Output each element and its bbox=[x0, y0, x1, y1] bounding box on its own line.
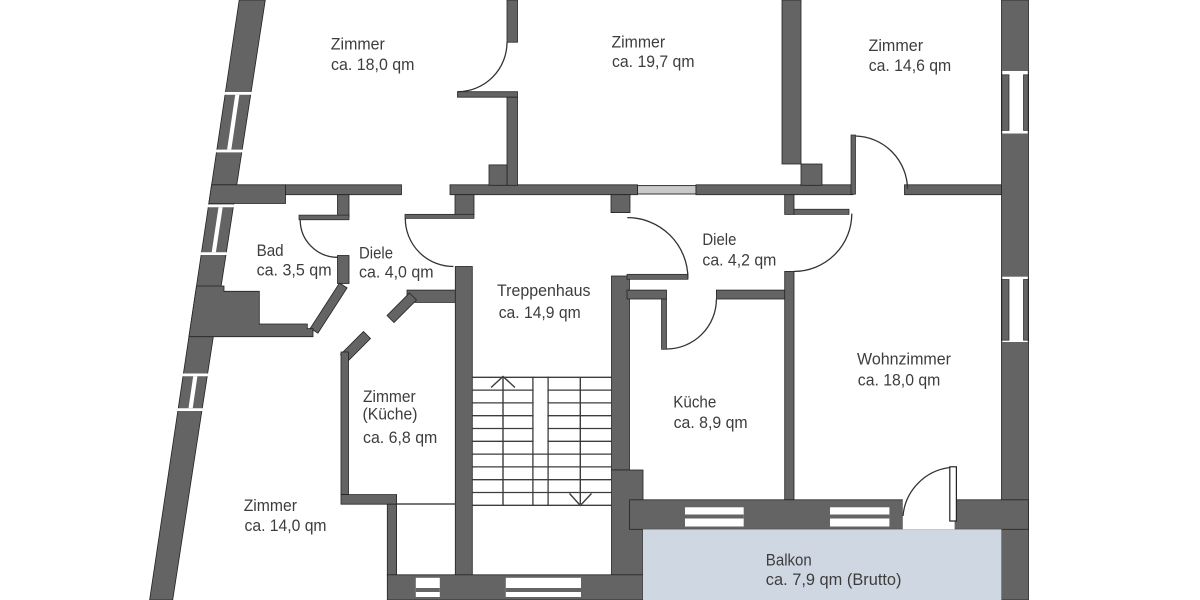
svg-text:ca. 18,0 qm: ca. 18,0 qm bbox=[331, 56, 415, 74]
svg-text:Zimmer: Zimmer bbox=[331, 35, 386, 53]
svg-text:Zimmer: Zimmer bbox=[612, 34, 666, 52]
svg-text:ca. 18,0 qm: ca. 18,0 qm bbox=[858, 372, 941, 390]
svg-text:ca. 6,8 qm: ca. 6,8 qm bbox=[363, 429, 437, 447]
svg-text:ca. 8,9 qm: ca. 8,9 qm bbox=[674, 414, 748, 432]
svg-text:ca. 4,2 qm: ca. 4,2 qm bbox=[702, 252, 776, 270]
svg-text:Diele: Diele bbox=[702, 231, 736, 249]
svg-text:Zimmer: Zimmer bbox=[869, 37, 924, 55]
svg-text:Treppenhaus: Treppenhaus bbox=[497, 282, 591, 300]
svg-text:Küche: Küche bbox=[673, 394, 716, 412]
svg-text:Bad: Bad bbox=[257, 242, 284, 260]
svg-text:ca. 14,0 qm: ca. 14,0 qm bbox=[245, 517, 327, 535]
svg-text:ca. 7,9 qm (Brutto): ca. 7,9 qm (Brutto) bbox=[766, 571, 902, 589]
svg-text:(Küche): (Küche) bbox=[363, 406, 418, 424]
svg-text:ca. 19,7 qm: ca. 19,7 qm bbox=[612, 53, 695, 71]
svg-text:Wohnzimmer: Wohnzimmer bbox=[857, 351, 952, 369]
svg-text:ca. 4,0 qm: ca. 4,0 qm bbox=[359, 264, 434, 282]
svg-text:Balkon: Balkon bbox=[766, 552, 812, 570]
svg-text:Zimmer: Zimmer bbox=[363, 388, 416, 406]
svg-text:ca. 14,6 qm: ca. 14,6 qm bbox=[869, 57, 952, 75]
svg-text:ca. 3,5 qm: ca. 3,5 qm bbox=[257, 262, 332, 280]
svg-text:Zimmer: Zimmer bbox=[244, 497, 298, 515]
svg-text:ca. 14,9 qm: ca. 14,9 qm bbox=[499, 304, 581, 322]
svg-text:Diele: Diele bbox=[359, 244, 393, 262]
